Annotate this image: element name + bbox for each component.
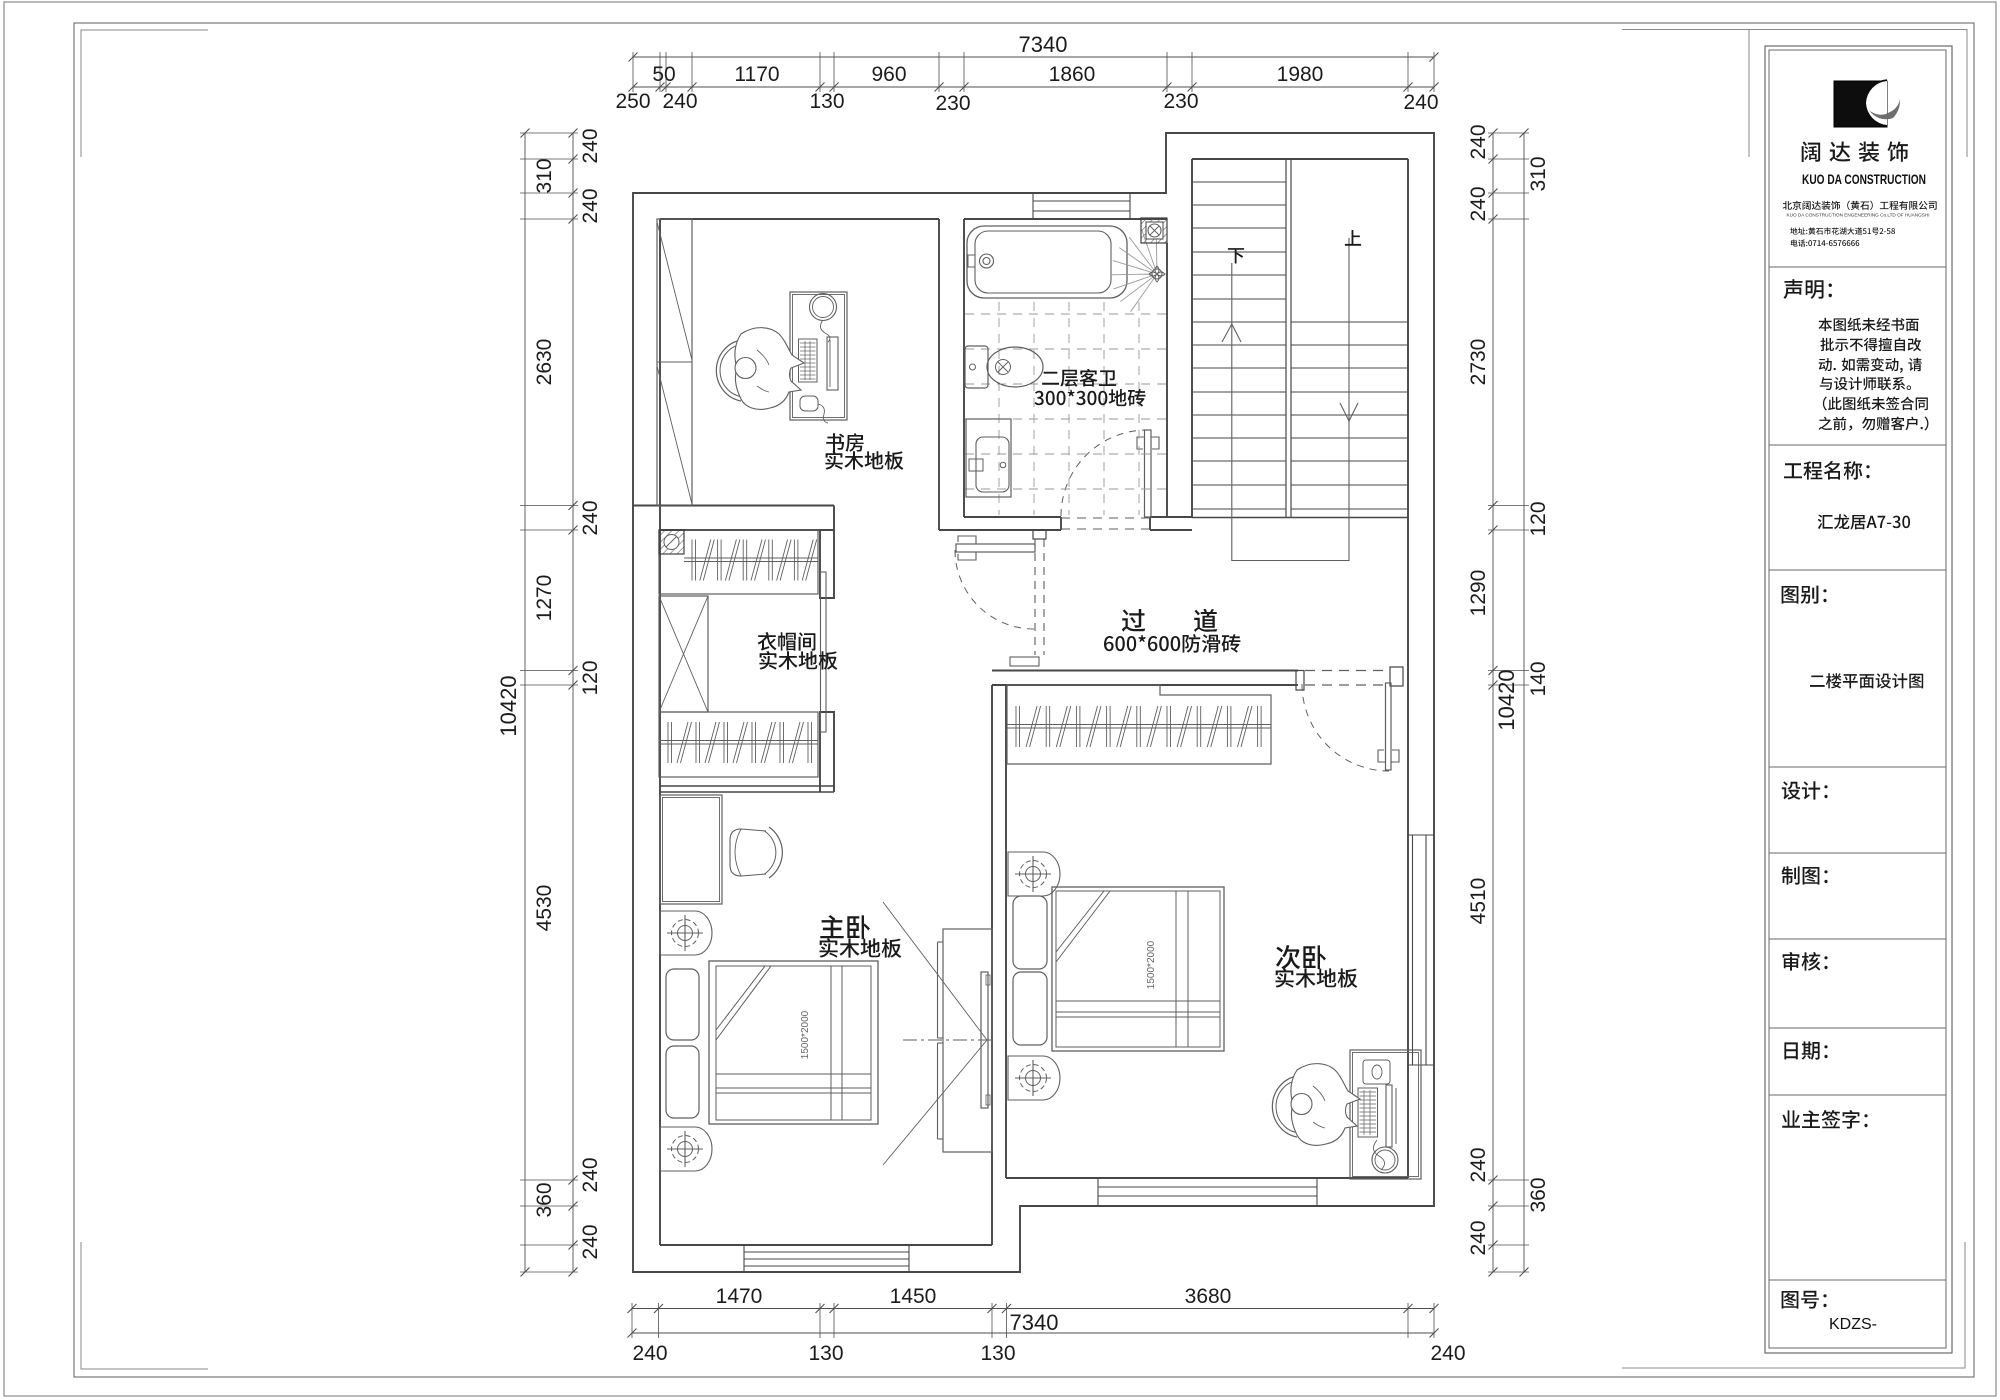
svg-text:240: 240 [662, 90, 697, 113]
svg-text:230: 230 [1163, 90, 1198, 113]
svg-text:4530: 4530 [533, 885, 556, 932]
svg-text:2730: 2730 [1467, 339, 1490, 386]
svg-text:120: 120 [579, 660, 602, 695]
svg-text:230: 230 [935, 92, 970, 115]
svg-text:240: 240 [1467, 1220, 1490, 1255]
svg-text:KUO DA CONSTRUCTION: KUO DA CONSTRUCTION [1802, 171, 1926, 187]
svg-text:1980: 1980 [1277, 63, 1324, 86]
svg-text:2630: 2630 [533, 339, 556, 386]
svg-text:50: 50 [652, 63, 675, 86]
svg-text:130: 130 [809, 90, 844, 113]
svg-text:1860: 1860 [1049, 63, 1096, 86]
svg-text:1450: 1450 [890, 1285, 937, 1308]
svg-text:1500*2000: 1500*2000 [800, 1010, 811, 1059]
svg-text:KDZS-: KDZS- [1829, 1316, 1877, 1333]
svg-text:360: 360 [1527, 1177, 1550, 1212]
svg-text:310: 310 [1527, 156, 1550, 191]
svg-text:3680: 3680 [1185, 1285, 1232, 1308]
svg-text:1470: 1470 [716, 1285, 763, 1308]
svg-text:960: 960 [871, 63, 906, 86]
svg-text:240: 240 [1467, 186, 1490, 221]
svg-text:240: 240 [1430, 1342, 1465, 1365]
svg-text:140: 140 [1527, 661, 1550, 696]
svg-text:240: 240 [579, 188, 602, 223]
svg-text:120: 120 [1527, 501, 1550, 536]
svg-text:240: 240 [1467, 1147, 1490, 1182]
svg-text:240: 240 [579, 1157, 602, 1192]
svg-text:10420: 10420 [1494, 669, 1519, 730]
svg-text:1270: 1270 [533, 575, 556, 622]
svg-text:240: 240 [579, 128, 602, 163]
svg-text:360: 360 [533, 1182, 556, 1217]
svg-text:7340: 7340 [1010, 1310, 1059, 1335]
svg-text:240: 240 [632, 1342, 667, 1365]
svg-text:1170: 1170 [734, 63, 779, 86]
svg-text:240: 240 [579, 500, 602, 535]
svg-text:7340: 7340 [1019, 32, 1068, 57]
svg-text:4510: 4510 [1467, 878, 1490, 925]
svg-text:10420: 10420 [496, 675, 521, 736]
svg-text:1500*2000: 1500*2000 [1146, 940, 1157, 989]
svg-text:250: 250 [615, 90, 650, 113]
svg-text:1290: 1290 [1467, 570, 1490, 617]
svg-text:KUO DA CONSTRUCTION ENGENEERIN: KUO DA CONSTRUCTION ENGENEERING Co.LTD O… [1787, 213, 1930, 218]
svg-text:240: 240 [579, 1224, 602, 1259]
svg-text:130: 130 [808, 1342, 843, 1365]
svg-text:240: 240 [1467, 124, 1490, 159]
svg-text:240: 240 [1403, 91, 1438, 114]
svg-text:310: 310 [533, 158, 556, 193]
svg-text:130: 130 [980, 1342, 1015, 1365]
